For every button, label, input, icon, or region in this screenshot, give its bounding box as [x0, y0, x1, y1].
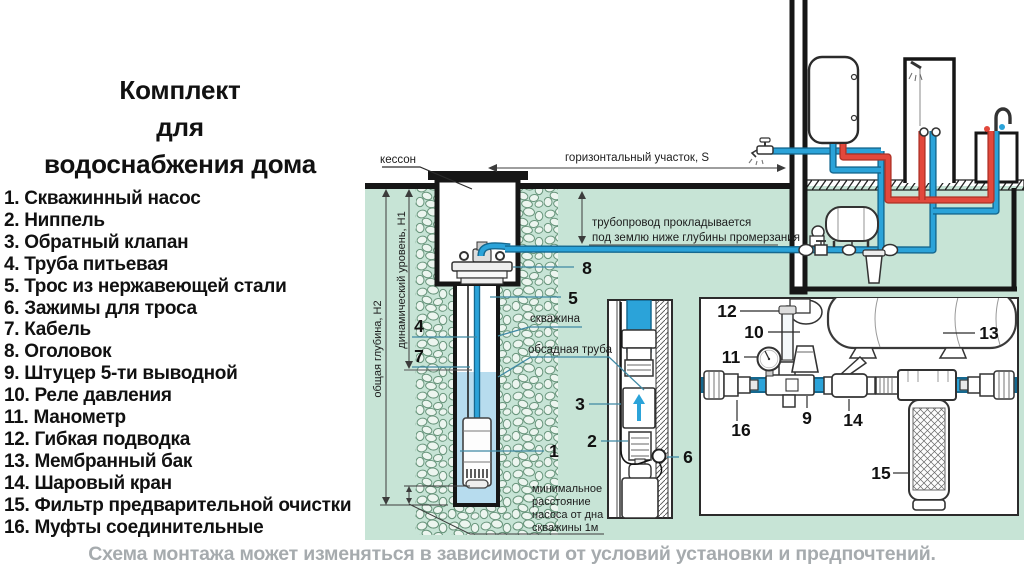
ribbed-coupling: [876, 377, 898, 394]
cable-clamp: [653, 450, 666, 463]
callout-5-cable: 5: [568, 288, 578, 308]
min-distance-line1: минимальное: [532, 483, 602, 495]
coupling-fitting: [622, 330, 656, 376]
check-valve: [623, 388, 655, 428]
infographic-page: Комплект для водоснабжения дома 1. Скваж…: [0, 0, 1024, 576]
callout-6-clamp: 6: [683, 447, 693, 467]
callout-13-tank: 13: [979, 323, 999, 343]
borehole-pump: [463, 418, 491, 488]
callout-4-pipe: 4: [414, 316, 424, 336]
total-depth-label: общая глубина, Н2: [372, 300, 384, 397]
callout-9-fitting: 9: [802, 408, 812, 428]
well-label: скважина: [530, 313, 581, 325]
callout-11-manometer: 11: [722, 347, 741, 367]
min-distance-line2: расстояние: [532, 496, 591, 508]
pressure-switch: [792, 346, 818, 372]
filter-mesh: [913, 408, 945, 490]
horizontal-section-label: горизонтальный участок, S: [565, 152, 709, 164]
callout-8-wellhead: 8: [582, 258, 592, 278]
casing-label: обсадная труба: [528, 344, 613, 356]
callout-14-ball-valve: 14: [843, 410, 863, 430]
footer-caption: Схема монтажа может изменяться в зависим…: [0, 543, 1024, 566]
min-distance-line4: скважины 1м: [532, 522, 598, 534]
callout-10-pressure-switch: 10: [744, 322, 764, 342]
ground-surface-line: [365, 183, 790, 189]
boiler: [809, 57, 858, 143]
freeze-note-line2: под землю ниже глубины промерзания: [592, 232, 800, 244]
callout-16-coupling: 16: [731, 420, 751, 440]
callout-3-check-valve: 3: [575, 394, 585, 414]
caisson-lid: [428, 171, 528, 180]
nipple: [629, 432, 651, 460]
pump-string-inset: [608, 300, 672, 518]
dynamic-level-label: динамический уровень, Н1: [396, 211, 408, 348]
callout-12-hose: 12: [717, 301, 737, 321]
outdoor-tap: [749, 138, 773, 165]
flexible-hose: [779, 306, 796, 368]
freeze-note-line1: трубопровод прокладывается: [592, 217, 751, 229]
callout-2-nipple: 2: [587, 431, 597, 451]
kesson-label: кессон: [380, 154, 416, 166]
callout-15-filter: 15: [871, 463, 891, 483]
callout-1-pump: 1: [549, 441, 559, 461]
callout-7-cable: 7: [414, 346, 424, 366]
well-supply-diagram: кессон горизонтальный участок, S трубопр…: [0, 0, 1024, 576]
min-distance-line3: насоса от дна: [532, 509, 604, 521]
